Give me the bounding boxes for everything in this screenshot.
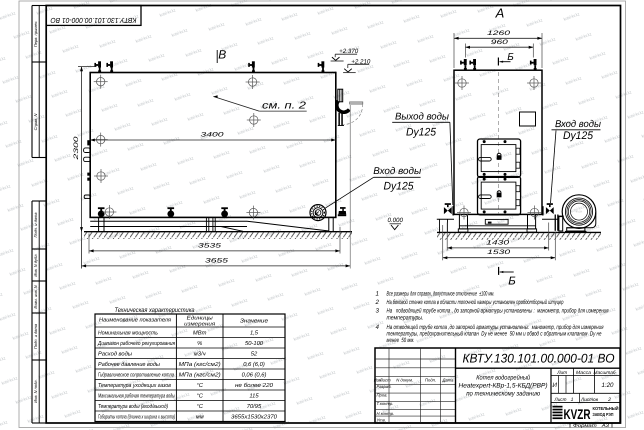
svg-text:измерения: измерения <box>184 322 215 328</box>
svg-text:менее 50 мм.: менее 50 мм. <box>387 337 415 344</box>
svg-text:Габариты котла (длинна х ширин: Габариты котла (длинна х ширина х высота… <box>98 413 175 420</box>
svg-text:3655х1530х2370: 3655х1530х2370 <box>231 413 278 420</box>
svg-text:1: 1 <box>571 397 574 403</box>
svg-text:2: 2 <box>375 299 380 306</box>
svg-text:0,6 (6,0): 0,6 (6,0) <box>243 361 265 368</box>
svg-text:температуры.: температуры. <box>387 315 424 322</box>
svg-text:Формат А3: Формат А3 <box>573 423 609 429</box>
svg-text:4: 4 <box>376 324 380 331</box>
svg-text:см. п. 2: см. п. 2 <box>262 101 307 112</box>
svg-text:мм: мм <box>196 414 204 420</box>
svg-text:Техническая характеристика: Техническая характеристика <box>115 307 195 314</box>
svg-text:Диапазон рабочего регулировани: Диапазон рабочего регулирования <box>97 340 175 347</box>
svg-text:Подп.: Подп. <box>425 377 436 382</box>
svg-text:70/95: 70/95 <box>247 403 262 410</box>
svg-text:И: И <box>552 382 557 389</box>
svg-text:Лист: Лист <box>554 397 567 403</box>
svg-text:Единицы: Единицы <box>187 316 213 322</box>
svg-text:Подп. и дата: Подп. и дата <box>33 212 38 238</box>
svg-text:В: В <box>218 48 226 62</box>
svg-text:Выход воды: Выход воды <box>395 112 450 123</box>
svg-text:Лит: Лит <box>556 370 567 376</box>
svg-text:Пров.: Пров. <box>377 392 388 397</box>
svg-text:Максимальная рабочая температу: Максимальная рабочая температура воды <box>98 392 175 399</box>
svg-text:3655: 3655 <box>205 257 229 264</box>
svg-text:Heatexpert-КВр-1,5-КБД(РВР): Heatexpert-КВр-1,5-КБД(РВР) <box>459 383 548 390</box>
svg-text:КВТУ.130.101.00.000-01 ВО: КВТУ.130.101.00.000-01 ВО <box>463 352 615 366</box>
svg-text:N докум.: N докум. <box>396 377 413 382</box>
svg-text:50-100: 50-100 <box>245 340 264 347</box>
svg-text:Б: Б <box>508 276 516 288</box>
svg-text:Инв. N дубл.: Инв. N дубл. <box>33 253 38 276</box>
svg-text:Дата: Дата <box>441 377 454 382</box>
svg-text:°С: °С <box>196 392 203 399</box>
svg-text:На боковой стенке котла в обла: На боковой стенке котла в области топочн… <box>387 299 564 306</box>
svg-text:3400: 3400 <box>201 132 225 139</box>
svg-text:А: А <box>495 6 505 21</box>
svg-text:%: % <box>197 340 202 347</box>
svg-text:°С: °С <box>196 403 203 410</box>
svg-text:0,06 (0,6): 0,06 (0,6) <box>242 371 267 378</box>
svg-text:115: 115 <box>249 393 259 399</box>
svg-text:1430: 1430 <box>486 239 510 246</box>
svg-text:Листов: Листов <box>580 397 598 403</box>
svg-text:1530: 1530 <box>487 249 511 256</box>
svg-text:1,5: 1,5 <box>250 330 259 336</box>
svg-text:Н.контр.: Н.контр. <box>377 411 395 416</box>
svg-text:температуры, предохранительный: температуры, предохранительный клапан Dу… <box>387 331 602 338</box>
svg-text:м3/ч: м3/ч <box>194 350 206 357</box>
svg-text:Значение: Значение <box>240 318 269 325</box>
svg-text:2: 2 <box>607 397 611 403</box>
svg-text:°С: °С <box>196 382 203 389</box>
svg-text:Масштаб: Масштаб <box>594 370 616 376</box>
svg-text:Наименование показателя: Наименование показателя <box>99 318 171 324</box>
svg-text:Вход воды: Вход воды <box>373 166 422 177</box>
svg-text:2300: 2300 <box>73 136 80 161</box>
svg-text:Dy125: Dy125 <box>563 130 594 142</box>
svg-text:Рабочее давление воды: Рабочее давление воды <box>98 361 161 368</box>
svg-text:Номинальная мощность: Номинальная мощность <box>98 330 158 336</box>
svg-text:Взам. инв. N: Взам. инв. N <box>33 285 38 308</box>
svg-text:3535: 3535 <box>198 242 222 249</box>
svg-text:Все размеры для справок, допус: Все размеры для справок, допустимое откл… <box>387 291 495 298</box>
svg-text:Лист: Лист <box>379 377 391 382</box>
svg-text:Вход воды: Вход воды <box>555 119 602 130</box>
svg-text:КОТЕЛЬНЫЙ: КОТЕЛЬНЫЙ <box>593 406 619 411</box>
svg-text:МВт: МВт <box>193 330 207 336</box>
svg-text:Котел водогрейный: Котел водогрейный <box>476 374 530 381</box>
svg-text:КВТУ.130.101.00.000-01 ВО: КВТУ.130.101.00.000-01 ВО <box>50 16 136 25</box>
svg-text:Б: Б <box>507 52 514 63</box>
svg-text:Масса: Масса <box>576 370 591 376</box>
svg-text:3: 3 <box>376 308 380 315</box>
svg-text:Dy125: Dy125 <box>384 181 415 193</box>
svg-text:Температура уходящих газов: Температура уходящих газов <box>98 382 171 389</box>
svg-text:по техническому заданию: по техническому заданию <box>466 391 540 398</box>
svg-text:ЗАВОД РЭП: ЗАВОД РЭП <box>593 412 614 417</box>
svg-text:Инв. N подл.: Инв. N подл. <box>33 379 38 402</box>
svg-text:Расход воды: Расход воды <box>98 350 133 357</box>
svg-text:Справ. N: Справ. N <box>33 114 38 131</box>
svg-text:Перв. примен.: Перв. примен. <box>33 21 38 48</box>
svg-text:52: 52 <box>251 350 258 357</box>
svg-text:Температура воды (вход/выход): Температура воды (вход/выход) <box>98 403 168 410</box>
svg-text:KVZR: KVZR <box>576 211 583 214</box>
svg-text:0.000: 0.000 <box>387 217 403 224</box>
svg-text:Гидравлическое сопротивление к: Гидравлическое сопротивление котла <box>98 371 175 378</box>
svg-text:1:20: 1:20 <box>602 382 614 389</box>
svg-text:На подводящей трубе котла ,: На подводящей трубе котла , до запорной … <box>387 308 609 315</box>
svg-text:МПа (кгс/см2): МПа (кгс/см2) <box>179 361 221 368</box>
svg-text:Разраб.: Разраб. <box>377 384 392 389</box>
svg-text:1: 1 <box>376 291 379 298</box>
svg-text:Dy125: Dy125 <box>406 127 437 139</box>
svg-text:960: 960 <box>491 39 509 46</box>
svg-text:Утв.: Утв. <box>377 417 387 422</box>
svg-text:Подп. и дата: Подп. и дата <box>33 323 38 349</box>
svg-text:1260: 1260 <box>487 30 511 37</box>
svg-text:Т.контр.: Т.контр. <box>377 401 394 406</box>
svg-text:KVZR: KVZR <box>564 406 591 422</box>
svg-text:МПа (кгс/см2): МПа (кгс/см2) <box>179 371 221 378</box>
svg-text:не более 220: не более 220 <box>235 382 274 389</box>
